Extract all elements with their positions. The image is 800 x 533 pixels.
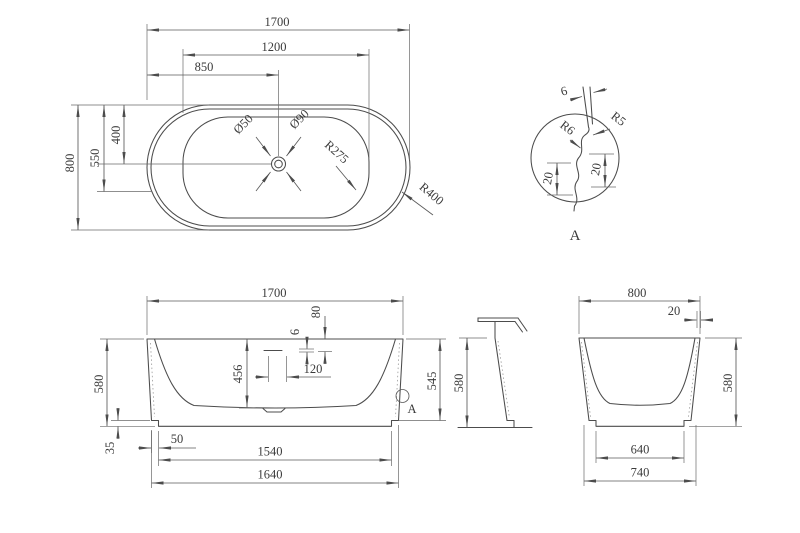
dim-label-detail-r6: R6 [557, 118, 577, 138]
dim-label-plan-850: 850 [195, 60, 214, 74]
dim-label-detail-6: 6 [559, 84, 569, 99]
dim-label-plan-1200: 1200 [262, 40, 287, 54]
dim-label-plan-400: 400 [109, 126, 123, 145]
bathtub-technical-drawing: 1700 1200 850 800 550 400 [0, 0, 800, 533]
dim-label-front-80: 80 [309, 306, 323, 319]
section-wall [495, 338, 507, 421]
plan-view: 1700 1200 850 800 550 400 [63, 15, 446, 230]
front-view: 1700 580 456 6 80 120 [92, 286, 446, 488]
dim-label-end-800: 800 [628, 286, 647, 300]
dim-label-detail-r5: R5 [608, 109, 628, 129]
section-geometry [458, 318, 532, 428]
dim-label-r400: R400 [417, 180, 447, 208]
dim-label-front-50: 50 [171, 432, 184, 446]
front-basin-profile [155, 339, 396, 408]
dim-label-plan-800: 800 [63, 154, 77, 173]
dim-label-r275: R275 [322, 138, 352, 167]
front-outline [147, 339, 403, 426]
dim-label-drain-50: Ø50 [231, 112, 256, 137]
dim-label-end-640: 640 [631, 443, 650, 457]
dim-label-front-545: 545 [425, 372, 439, 391]
dim-label-detail-20-left: 20 [540, 171, 556, 186]
detail-a-geometry [531, 87, 619, 211]
detail-a-title: A [570, 228, 581, 244]
break-line [574, 127, 589, 211]
dim-label-end-20: 20 [668, 304, 681, 318]
dim-label-end-740: 740 [631, 466, 650, 480]
dim-label-front-35: 35 [103, 442, 117, 455]
dim-label-front-1640: 1640 [258, 468, 283, 482]
dim-label-front-456: 456 [231, 365, 245, 384]
dim-label-plan-550: 550 [88, 149, 102, 168]
end-shell [579, 338, 700, 426]
drain-inner [275, 160, 283, 168]
dim-label-front-1540: 1540 [258, 445, 283, 459]
section-foot [507, 421, 514, 428]
dim-label-front-580: 580 [92, 375, 106, 394]
front-dimensions: 1700 580 456 6 80 120 [92, 286, 446, 488]
dim-label-drain-90: Ø90 [287, 107, 312, 132]
dim-label-front-6: 6 [288, 329, 302, 335]
drain-outer [272, 157, 286, 171]
end-dimensions: 800 20 580 640 740 [579, 286, 742, 486]
end-basin-profile [584, 338, 695, 405]
dim-label-front-120: 120 [304, 362, 323, 376]
detail-a-marker-circle [396, 390, 409, 403]
dim-label-detail-20-right: 20 [588, 162, 604, 177]
plan-dimensions: 1700 1200 850 800 550 400 [63, 15, 446, 230]
end-view: 800 20 580 640 740 [579, 286, 742, 486]
dim-label-end-580: 580 [721, 374, 735, 393]
dim-label-section-580: 580 [452, 374, 466, 393]
dim-label-plan-1700: 1700 [265, 15, 290, 29]
end-outline [579, 338, 700, 426]
section-view: 580 [452, 318, 532, 428]
drawing-sheet: 1700 1200 850 800 550 400 [0, 0, 800, 533]
section-dimensions: 580 [452, 338, 487, 428]
dim-label-front-1700: 1700 [262, 286, 287, 300]
detail-a-view: 6 R5 R6 20 20 A [531, 84, 629, 244]
detail-a-reference: A [407, 402, 416, 416]
front-shell [147, 339, 403, 426]
front-drain [263, 409, 285, 413]
